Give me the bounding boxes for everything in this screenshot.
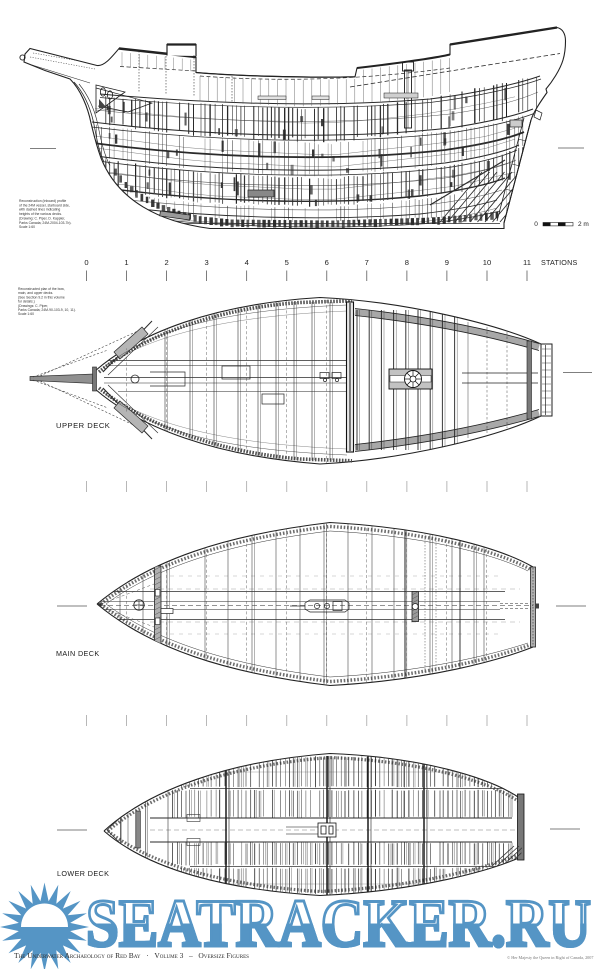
- svg-text:0: 0: [84, 258, 88, 267]
- svg-text:3: 3: [204, 258, 208, 267]
- svg-text:2: 2: [164, 258, 168, 267]
- svg-text:2 m: 2 m: [578, 221, 589, 228]
- svg-text:6: 6: [325, 258, 329, 267]
- svg-text:SEATRACKER.RU: SEATRACKER.RU: [86, 885, 591, 961]
- svg-text:with dashed lines indicating: with dashed lines indicating: [19, 208, 60, 212]
- svg-text:of the 24M vessel, starboard s: of the 24M vessel, starboard side,: [19, 203, 70, 207]
- svg-text:10: 10: [483, 258, 491, 267]
- svg-text:1: 1: [124, 258, 128, 267]
- svg-text:MAIN DECK: MAIN DECK: [56, 649, 100, 658]
- svg-text:9: 9: [445, 258, 449, 267]
- svg-text:UPPER DECK: UPPER DECK: [56, 421, 110, 430]
- svg-text:Scale 1:60: Scale 1:60: [18, 312, 34, 316]
- svg-text:The Underwater Archaeology of: The Underwater Archaeology of Red Bay · …: [14, 951, 249, 960]
- svg-text:STATIONS: STATIONS: [541, 258, 577, 267]
- svg-text:11: 11: [523, 258, 531, 267]
- svg-text:7: 7: [365, 258, 369, 267]
- svg-text:4: 4: [245, 258, 249, 267]
- svg-text:8: 8: [405, 258, 409, 267]
- svg-text:Scale 1:60: Scale 1:60: [19, 225, 35, 229]
- svg-text:5: 5: [285, 258, 289, 267]
- svg-text:(Drawing: C. Piper, D. Kappler: (Drawing: C. Piper, D. Kappler,: [19, 216, 65, 220]
- svg-text:0: 0: [534, 221, 538, 228]
- svg-text:LOWER DECK: LOWER DECK: [57, 869, 109, 878]
